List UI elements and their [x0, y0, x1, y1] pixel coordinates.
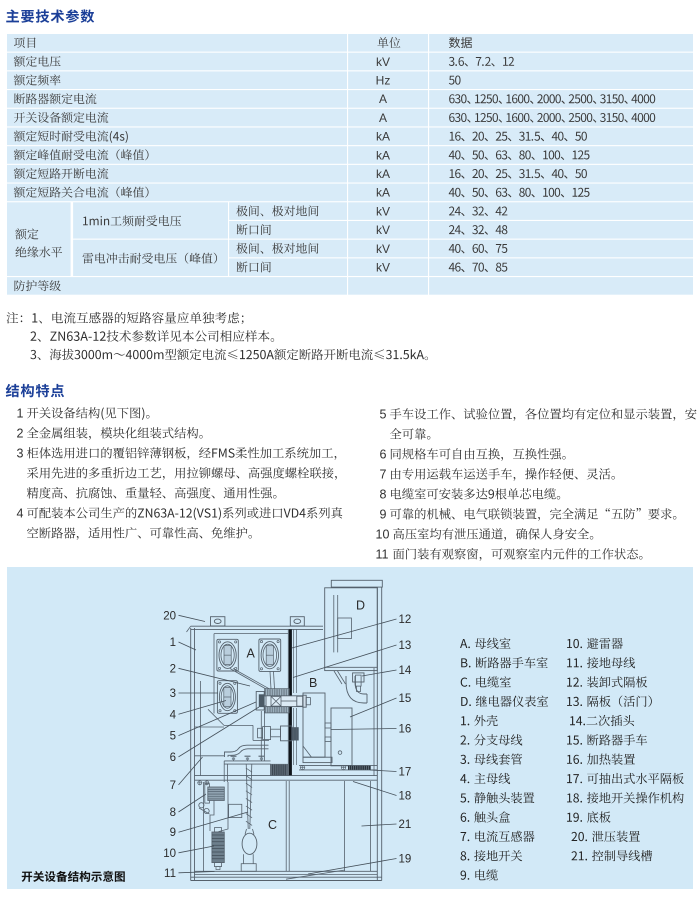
svg-text:12: 12 [399, 614, 412, 626]
svg-text:8: 8 [380, 488, 387, 502]
svg-text:A: A [379, 111, 387, 125]
svg-text:kA: kA [376, 148, 390, 162]
svg-text:5: 5 [380, 408, 387, 422]
svg-text:kV: kV [376, 242, 390, 256]
svg-text:kA: kA [376, 130, 390, 144]
svg-text:11: 11 [164, 868, 176, 880]
svg-text:A: A [379, 92, 387, 106]
svg-text:2: 2 [17, 427, 24, 441]
svg-text:kA: kA [376, 167, 390, 181]
svg-text:2: 2 [170, 663, 176, 675]
svg-text:C: C [268, 818, 277, 832]
svg-text:15: 15 [399, 693, 412, 705]
svg-text:D: D [356, 599, 365, 613]
svg-text:19: 19 [399, 854, 412, 866]
svg-text:20: 20 [163, 610, 176, 622]
svg-text:18: 18 [399, 791, 412, 803]
svg-text:kA: kA [376, 186, 390, 200]
svg-text:3: 3 [17, 447, 24, 461]
svg-text:10: 10 [163, 848, 176, 860]
svg-text:4: 4 [17, 507, 24, 521]
svg-text:1: 1 [17, 407, 24, 421]
svg-text:3: 3 [170, 688, 176, 700]
svg-text:9: 9 [380, 508, 387, 522]
svg-text:16: 16 [399, 724, 412, 736]
svg-text:A: A [247, 647, 256, 661]
svg-text:7: 7 [170, 780, 176, 792]
svg-text:kV: kV [376, 223, 390, 237]
svg-text:8: 8 [170, 807, 176, 819]
svg-text:21: 21 [399, 819, 412, 831]
svg-text:kV: kV [376, 55, 390, 69]
svg-text:1: 1 [170, 637, 176, 649]
svg-text:B: B [309, 676, 317, 690]
svg-text:Hz: Hz [376, 74, 391, 88]
svg-text:9: 9 [170, 827, 176, 839]
svg-text:14: 14 [399, 665, 412, 677]
svg-text:13: 13 [399, 640, 412, 652]
svg-text:11: 11 [376, 548, 389, 562]
svg-text:6: 6 [170, 752, 176, 764]
svg-text:7: 7 [380, 468, 387, 482]
svg-text:17: 17 [399, 767, 412, 779]
svg-text:4: 4 [170, 709, 177, 721]
svg-text:kV: kV [376, 204, 390, 218]
svg-text:kV: kV [376, 261, 390, 275]
svg-text:10: 10 [376, 528, 390, 542]
svg-text:5: 5 [170, 731, 176, 743]
svg-text:6: 6 [380, 448, 387, 462]
